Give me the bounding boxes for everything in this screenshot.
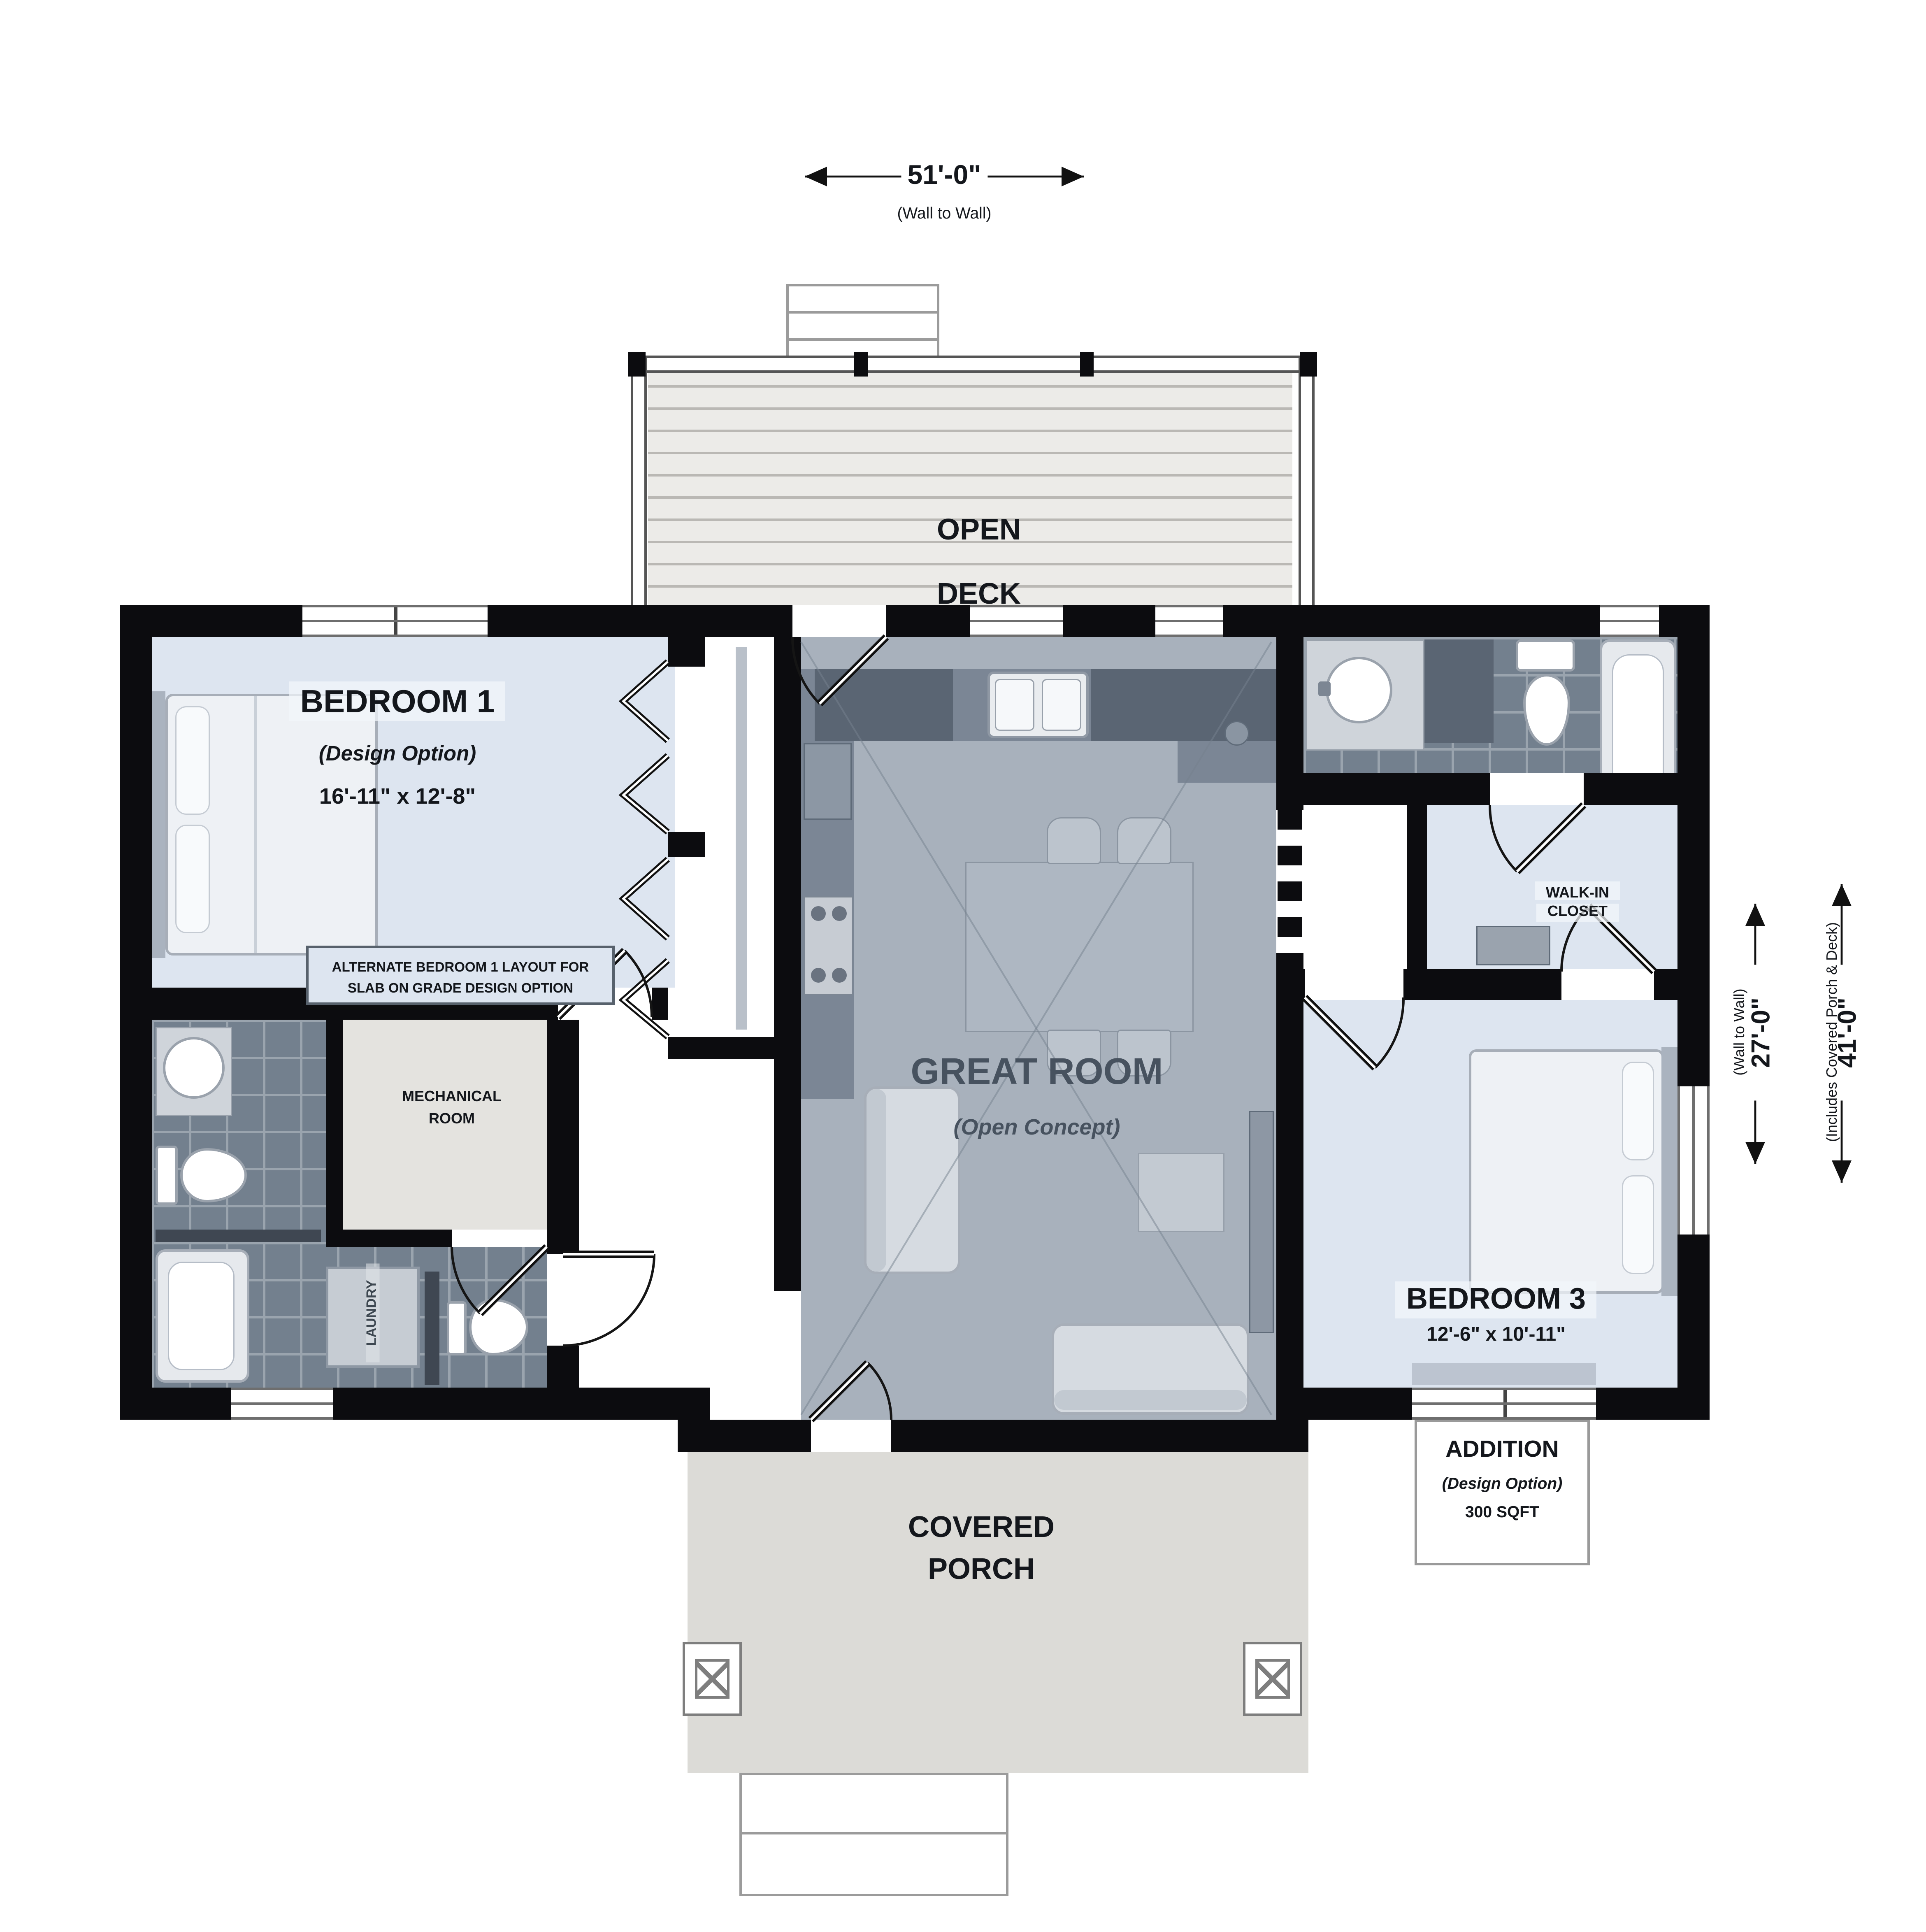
dresser-icon bbox=[1476, 926, 1550, 965]
bedroom1-note-box: ALTERNATE BEDROOM 1 LAYOUT FOR SLAB ON G… bbox=[306, 946, 615, 1005]
mechanical-label: MECHANICAL bbox=[402, 1089, 502, 1104]
floor-plan-canvas: 51'-0" (Wall to Wall) OPEN DECK BEDROOM … bbox=[0, 0, 1926, 1932]
addition-size: 300 SQFT bbox=[1417, 1502, 1587, 1521]
closet-rod bbox=[736, 647, 747, 1030]
walk-in-closet-label: CLOSET bbox=[1536, 904, 1619, 922]
door-gap-closet bbox=[1561, 969, 1654, 1000]
dimension-width-value: 51'-0" bbox=[901, 162, 987, 189]
deck-steps bbox=[786, 311, 939, 341]
pillow-icon bbox=[1622, 1175, 1654, 1274]
great-room-option: (Open Concept) bbox=[954, 1116, 1120, 1138]
range-burner bbox=[832, 906, 847, 921]
bedroom3-label: BEDROOM 3 bbox=[1395, 1281, 1597, 1318]
fridge-icon bbox=[804, 743, 852, 820]
blanket-line bbox=[254, 696, 257, 953]
bedroom1-size: 16'-11" x 12'-8" bbox=[319, 785, 476, 807]
porch-steps bbox=[739, 1832, 1008, 1896]
wall bbox=[678, 1420, 1308, 1452]
wall bbox=[120, 1388, 710, 1420]
deck-post bbox=[1300, 352, 1317, 377]
walk-in-closet-label: WALK-IN bbox=[1535, 881, 1620, 900]
door-gap-bath-right bbox=[1490, 773, 1584, 805]
covered-porch-label: COVERED bbox=[908, 1514, 1055, 1543]
wall bbox=[668, 832, 705, 857]
window bbox=[302, 605, 488, 637]
wall bbox=[1407, 805, 1427, 969]
deck-post bbox=[628, 352, 646, 377]
great-room-label: GREAT ROOM bbox=[911, 1054, 1163, 1091]
headboard bbox=[1661, 1047, 1677, 1296]
bath-cabinet bbox=[1424, 639, 1494, 743]
wall bbox=[774, 637, 801, 1291]
room-covered-porch bbox=[688, 1452, 1308, 1773]
faucet-icon bbox=[1318, 681, 1331, 696]
addition-box: ADDITION (Design Option) 300 SQFT bbox=[1415, 1420, 1590, 1565]
plan-scaler: 51'-0" (Wall to Wall) OPEN DECK BEDROOM … bbox=[0, 0, 1926, 1932]
open-deck-label: OPEN bbox=[937, 516, 1021, 546]
divider-wall bbox=[425, 1272, 439, 1385]
dining-table-icon bbox=[965, 862, 1194, 1032]
deck-rail-right bbox=[1299, 356, 1315, 637]
bedroom1-note-line2: SLAB ON GRADE DESIGN OPTION bbox=[309, 979, 612, 999]
covered-porch-label: PORCH bbox=[928, 1555, 1035, 1585]
sink-icon bbox=[163, 1037, 225, 1099]
bedroom1-label: BEDROOM 1 bbox=[289, 681, 506, 721]
porch-post-icon bbox=[683, 1642, 742, 1716]
deck-rail-left bbox=[631, 356, 647, 637]
window bbox=[1600, 605, 1659, 637]
window bbox=[1155, 605, 1223, 637]
kitchen-sink-basin bbox=[1042, 679, 1081, 731]
porch-post-icon bbox=[1243, 1642, 1302, 1716]
divider-wall bbox=[156, 1230, 321, 1242]
window bbox=[231, 1388, 333, 1420]
range-burner bbox=[811, 968, 826, 983]
opening-great-hall bbox=[1276, 810, 1303, 953]
bedroom1-note-line1: ALTERNATE BEDROOM 1 LAYOUT FOR bbox=[309, 958, 612, 979]
deck-post bbox=[1080, 352, 1094, 377]
range-burner bbox=[811, 906, 826, 921]
kitchen-cabinet bbox=[815, 669, 953, 741]
wall bbox=[668, 637, 705, 667]
door-gap-porch bbox=[811, 1420, 891, 1452]
dimension-depth-wall-value: 27'-0" bbox=[1749, 965, 1775, 1101]
addition-label: ADDITION bbox=[1417, 1437, 1587, 1464]
bedroom3-size: 12'-6" x 10'-11" bbox=[1426, 1326, 1566, 1346]
window bbox=[1412, 1388, 1596, 1420]
sink-icon bbox=[1326, 657, 1392, 723]
laundry-label: LAUNDRY bbox=[366, 1264, 380, 1362]
chair-icon bbox=[1047, 817, 1101, 864]
window bbox=[1677, 1086, 1710, 1235]
door-gap-deck bbox=[792, 605, 886, 637]
wall bbox=[1276, 637, 1303, 1388]
door-gap-mechanical bbox=[452, 1230, 547, 1247]
kitchen-sink-basin bbox=[995, 679, 1034, 731]
pillow-icon bbox=[175, 706, 210, 815]
trash-bin-icon bbox=[1224, 721, 1249, 746]
window bbox=[970, 605, 1063, 637]
addition-option: (Design Option) bbox=[1417, 1474, 1587, 1493]
tv-console-icon bbox=[1249, 1111, 1274, 1333]
mechanical-label: ROOM bbox=[429, 1111, 475, 1126]
chair-icon bbox=[1117, 817, 1171, 864]
bathtub-inner bbox=[168, 1262, 235, 1370]
range-burner bbox=[832, 968, 847, 983]
kitchen-counter bbox=[1178, 741, 1276, 783]
dimension-depth-wall-note: (Wall to Wall) bbox=[1732, 933, 1747, 1131]
toilet-icon bbox=[447, 1301, 467, 1355]
window-sill-shade bbox=[1412, 1363, 1596, 1385]
wall bbox=[1677, 605, 1710, 1420]
bathtub-inner bbox=[1612, 654, 1664, 793]
door-gap-bath-left bbox=[547, 1254, 579, 1346]
deck-rail-top bbox=[631, 356, 1315, 373]
deck-post bbox=[854, 352, 868, 377]
dimension-depth-total-note: (Includes Covered Porch & Deck) bbox=[1824, 884, 1839, 1180]
bedroom1-option: (Design Option) bbox=[319, 743, 476, 764]
coffee-table-icon bbox=[1138, 1153, 1224, 1232]
pillow-icon bbox=[175, 825, 210, 933]
sofa-back bbox=[867, 1089, 886, 1272]
toilet-icon bbox=[1516, 639, 1575, 672]
porch-steps bbox=[739, 1773, 1008, 1834]
toilet-icon bbox=[156, 1146, 178, 1205]
deck-steps bbox=[786, 284, 939, 314]
door-gap-bedroom3 bbox=[1305, 969, 1403, 1000]
dimension-width-note: (Wall to Wall) bbox=[897, 205, 992, 221]
sofa-back bbox=[1054, 1390, 1247, 1410]
pillow-icon bbox=[1622, 1062, 1654, 1160]
